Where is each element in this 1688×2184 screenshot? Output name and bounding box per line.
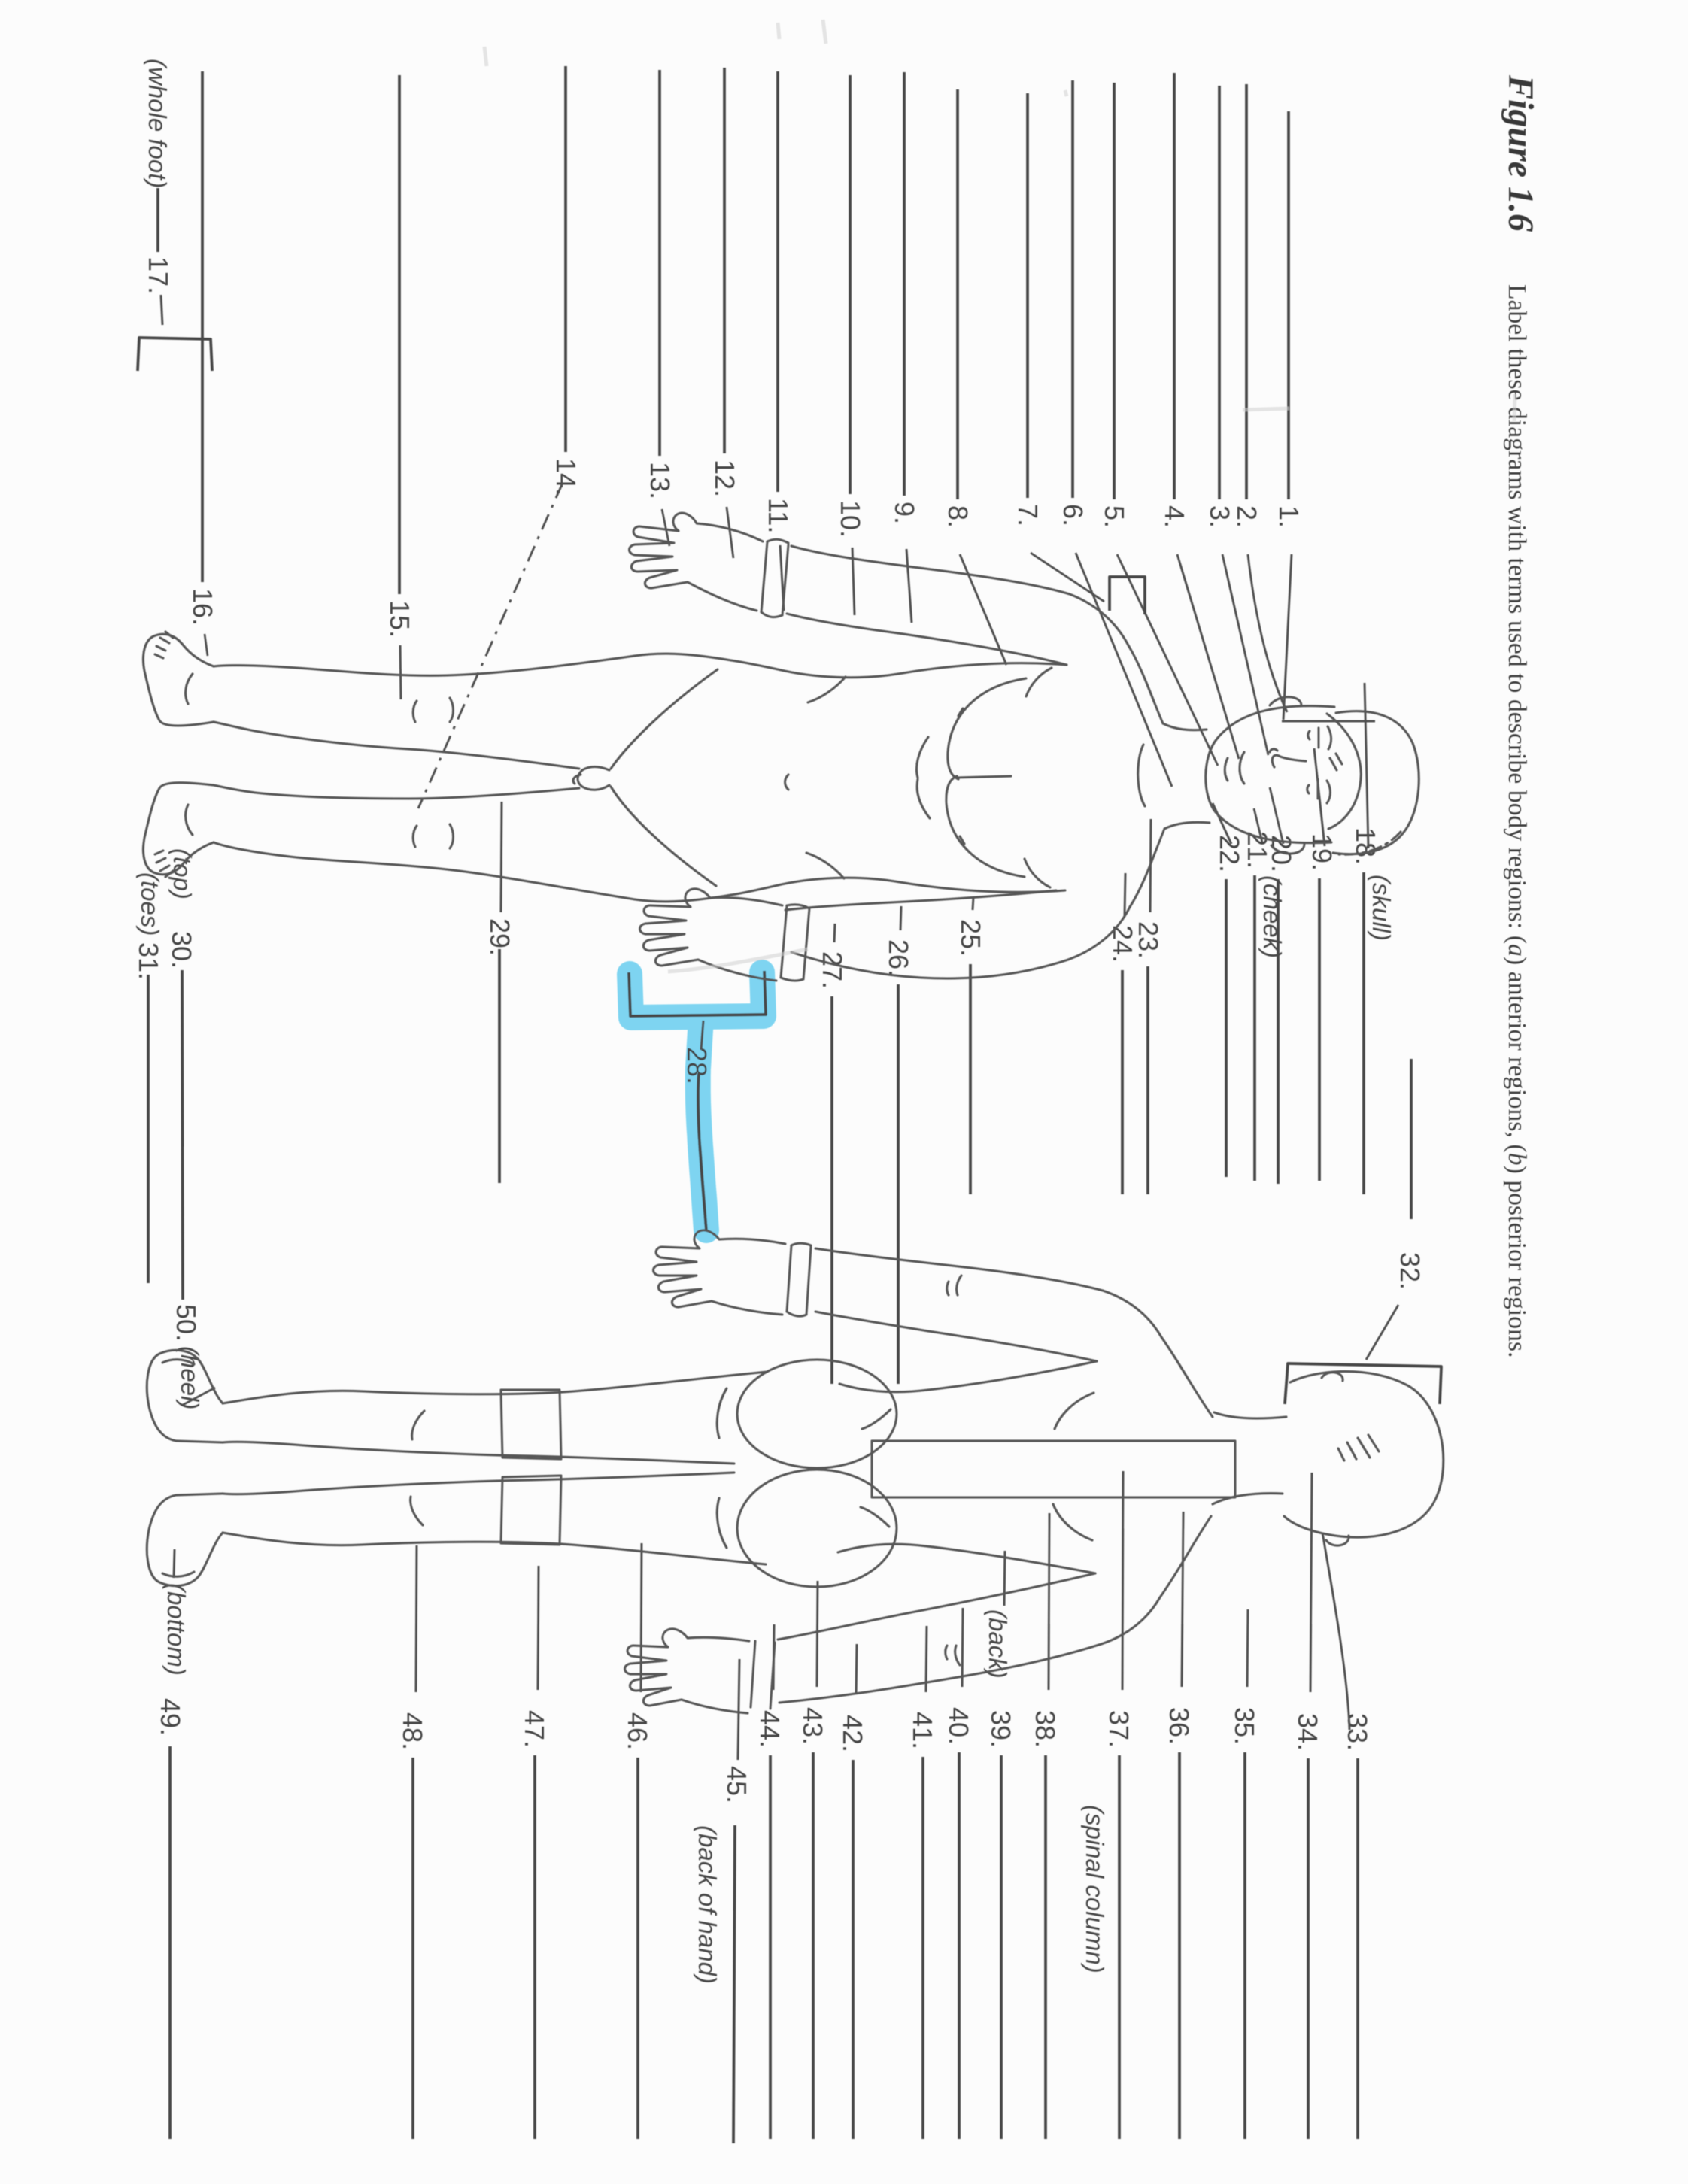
svg-text:(bottom): (bottom) xyxy=(162,1583,190,1676)
svg-text:(cheek): (cheek) xyxy=(1258,875,1286,958)
svg-text:12.: 12. xyxy=(709,460,740,497)
svg-text:7.: 7. xyxy=(1012,504,1043,526)
svg-text:31.: 31. xyxy=(133,942,164,980)
svg-text:Label these diagrams with term: Label these diagrams with terms used to … xyxy=(1503,284,1531,1358)
svg-text:25.: 25. xyxy=(955,919,986,957)
svg-text:46.: 46. xyxy=(622,1712,653,1750)
svg-text:Figure 1.6: Figure 1.6 xyxy=(1501,74,1541,232)
svg-text:49.: 49. xyxy=(155,1698,186,1736)
svg-text:15.: 15. xyxy=(384,600,415,638)
svg-text:32.: 32. xyxy=(1395,1252,1425,1290)
svg-text:36.: 36. xyxy=(1164,1707,1195,1745)
svg-text:(skull): (skull) xyxy=(1368,875,1395,941)
svg-text:6.: 6. xyxy=(1058,504,1088,526)
svg-text:(spinal column): (spinal column) xyxy=(1081,1805,1109,1973)
svg-text:35.: 35. xyxy=(1229,1707,1260,1745)
svg-text:4.: 4. xyxy=(1159,505,1190,528)
svg-text:34.: 34. xyxy=(1292,1713,1323,1751)
svg-text:1.: 1. xyxy=(1274,505,1304,528)
svg-text:10.: 10. xyxy=(835,500,866,538)
svg-text:16.: 16. xyxy=(187,588,218,626)
svg-text:26.: 26. xyxy=(883,939,914,977)
svg-text:8.: 8. xyxy=(943,505,973,528)
svg-text:30.: 30. xyxy=(166,931,197,969)
svg-text:48.: 48. xyxy=(397,1712,428,1750)
svg-text:(toes): (toes) xyxy=(136,872,164,936)
svg-text:42.: 42. xyxy=(837,1715,868,1752)
svg-text:13.: 13. xyxy=(645,462,676,499)
svg-text:33.: 33. xyxy=(1342,1713,1373,1751)
svg-text:(back of hand): (back of hand) xyxy=(694,1825,721,1984)
svg-text:3.: 3. xyxy=(1204,505,1235,528)
svg-text:41.: 41. xyxy=(907,1712,938,1749)
svg-text:9.: 9. xyxy=(889,502,920,524)
svg-text:37.: 37. xyxy=(1104,1710,1134,1748)
svg-text:28.: 28. xyxy=(682,1047,712,1084)
svg-text:45.: 45. xyxy=(721,1766,752,1803)
svg-text:17.: 17. xyxy=(143,256,174,294)
svg-text:27.: 27. xyxy=(817,951,848,989)
svg-text:(whole foot): (whole foot) xyxy=(144,59,172,188)
svg-text:11.: 11. xyxy=(763,498,794,533)
svg-text:50.: 50. xyxy=(171,1304,202,1342)
svg-text:39.: 39. xyxy=(985,1710,1016,1748)
svg-text:14.: 14. xyxy=(551,458,581,496)
svg-text:44.: 44. xyxy=(754,1710,785,1748)
svg-text:38.: 38. xyxy=(1030,1710,1061,1748)
svg-text:47.: 47. xyxy=(519,1710,550,1748)
svg-text:18.: 18. xyxy=(1350,827,1381,865)
svg-text:40.: 40. xyxy=(943,1707,974,1745)
svg-text:5.: 5. xyxy=(1099,505,1130,528)
svg-text:2.: 2. xyxy=(1231,505,1262,528)
svg-text:43.: 43. xyxy=(797,1707,828,1745)
